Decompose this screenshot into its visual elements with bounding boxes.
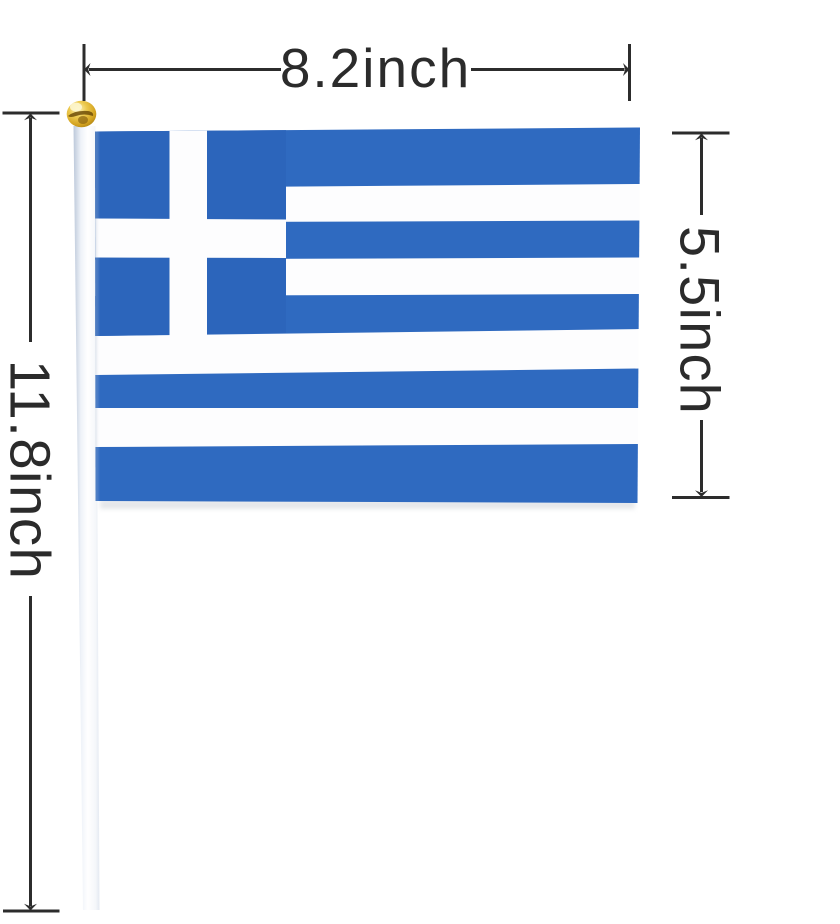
svg-text:5.5inch: 5.5inch — [668, 226, 731, 415]
svg-text:8.2inch: 8.2inch — [280, 37, 471, 99]
svg-text:11.8inch: 11.8inch — [0, 360, 61, 581]
